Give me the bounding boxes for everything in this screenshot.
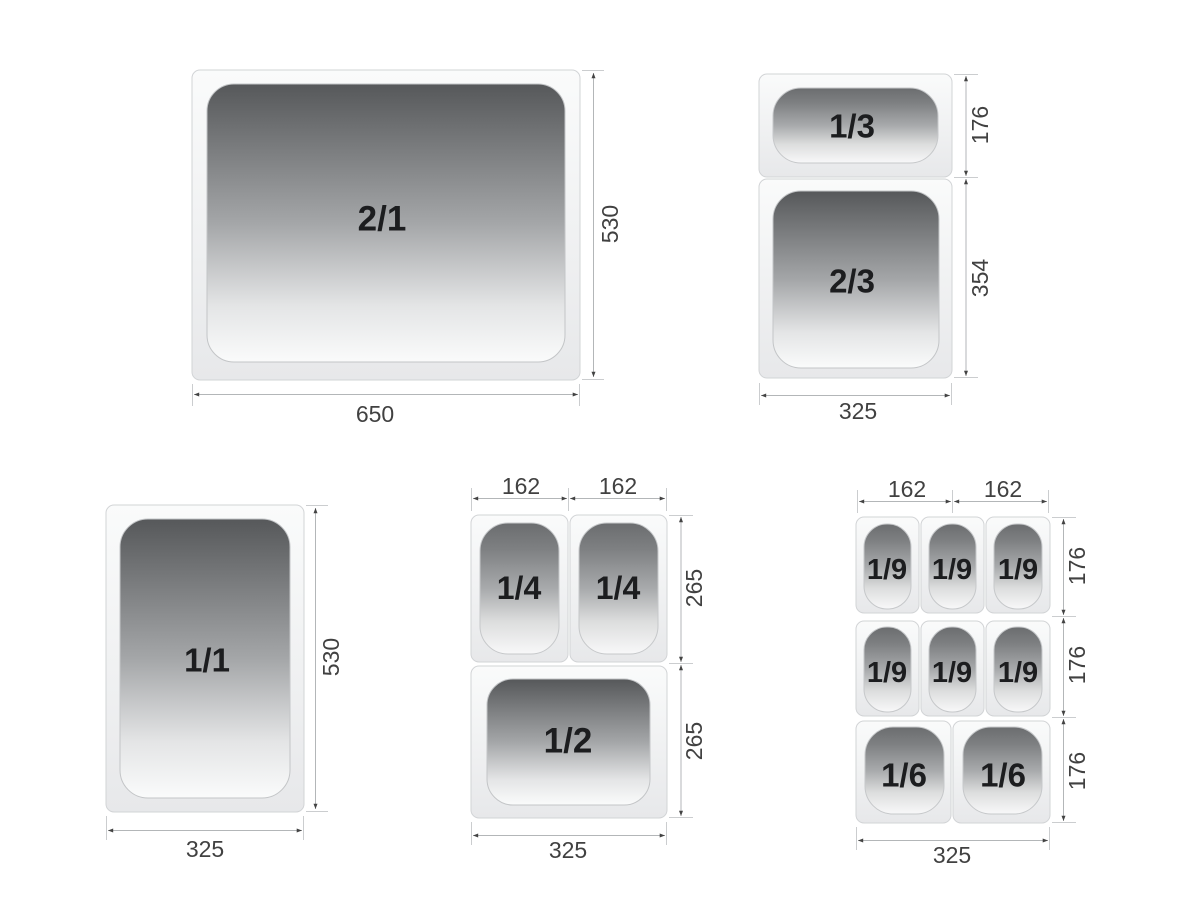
svg-text:530: 530 bbox=[318, 638, 344, 676]
svg-text:1/2: 1/2 bbox=[544, 722, 593, 761]
svg-text:325: 325 bbox=[186, 836, 224, 862]
svg-text:650: 650 bbox=[356, 401, 394, 427]
svg-text:162: 162 bbox=[502, 473, 540, 499]
svg-text:1/6: 1/6 bbox=[980, 757, 1026, 794]
svg-text:176: 176 bbox=[967, 106, 993, 144]
svg-text:1/6: 1/6 bbox=[881, 757, 927, 794]
svg-text:1/9: 1/9 bbox=[932, 657, 972, 689]
svg-text:1/4: 1/4 bbox=[497, 570, 542, 606]
svg-text:265: 265 bbox=[681, 722, 707, 760]
svg-text:1/4: 1/4 bbox=[596, 570, 641, 606]
svg-text:176: 176 bbox=[1064, 752, 1090, 790]
svg-text:162: 162 bbox=[984, 476, 1022, 502]
svg-text:2/3: 2/3 bbox=[829, 263, 875, 300]
svg-text:354: 354 bbox=[967, 259, 993, 298]
svg-text:325: 325 bbox=[933, 842, 971, 868]
svg-text:530: 530 bbox=[597, 205, 623, 243]
svg-text:176: 176 bbox=[1064, 547, 1090, 585]
svg-text:1/9: 1/9 bbox=[998, 657, 1038, 689]
svg-text:162: 162 bbox=[888, 476, 926, 502]
svg-text:325: 325 bbox=[549, 837, 587, 863]
svg-text:1/1: 1/1 bbox=[184, 642, 230, 679]
svg-text:1/9: 1/9 bbox=[932, 554, 972, 586]
svg-text:1/9: 1/9 bbox=[867, 554, 907, 586]
svg-text:325: 325 bbox=[839, 398, 877, 424]
svg-text:1/9: 1/9 bbox=[867, 657, 907, 689]
svg-text:1/3: 1/3 bbox=[829, 108, 875, 145]
svg-text:176: 176 bbox=[1064, 646, 1090, 684]
svg-text:2/1: 2/1 bbox=[358, 200, 407, 239]
svg-text:265: 265 bbox=[681, 569, 707, 607]
svg-text:162: 162 bbox=[599, 473, 637, 499]
svg-text:1/9: 1/9 bbox=[998, 554, 1038, 586]
